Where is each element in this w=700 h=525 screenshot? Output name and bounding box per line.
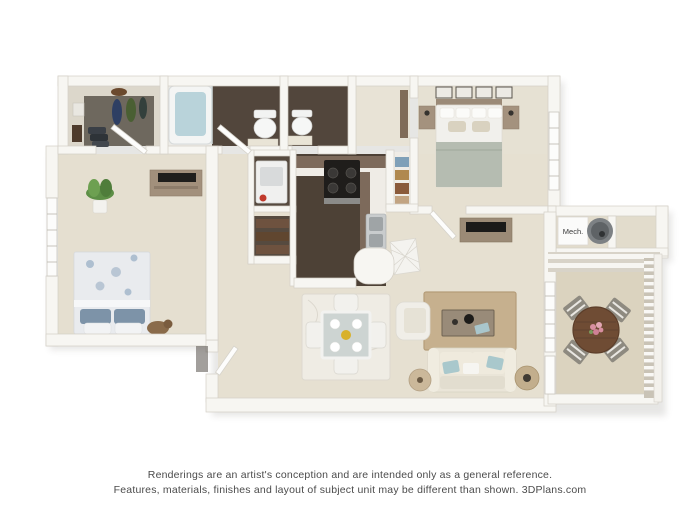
pouf-left: [409, 369, 431, 391]
decor-screen: [390, 238, 420, 274]
dining-area: [302, 294, 390, 380]
mech-label: Mech.: [563, 227, 583, 236]
bedroom2-window: [47, 198, 57, 276]
armchair: [396, 302, 430, 340]
master-window: [549, 112, 559, 190]
dresser-with-tv: [150, 170, 202, 196]
nightstand-right: [503, 106, 519, 129]
toilet-1: [254, 110, 276, 138]
detergent: [260, 195, 267, 202]
dining-table: [322, 312, 370, 358]
pantry-closet: [256, 219, 289, 254]
hanging-clothes: [112, 99, 122, 125]
sofa: [428, 348, 516, 392]
disclaimer-line-1: Renderings are an artist's conception an…: [0, 469, 700, 481]
closet-shelf-stack: [73, 103, 84, 116]
counter-end-curve: [354, 248, 394, 284]
mech-closet: Mech.: [558, 217, 613, 245]
patio-overhang: [548, 252, 660, 272]
toilet-2: [292, 110, 312, 135]
dressing-nook: [400, 90, 408, 138]
side-table-lamp: [515, 366, 539, 390]
water-heater: [587, 218, 613, 244]
coffee-table: [442, 310, 494, 336]
nightstand-left: [419, 106, 435, 129]
entry-threshold: [196, 346, 208, 372]
patio-window: [545, 282, 555, 352]
floor-plan-image: Mech.: [0, 0, 700, 525]
nook-dresser: [400, 90, 408, 138]
laundry-closet: [256, 161, 287, 203]
centerpiece: [341, 330, 351, 340]
kitchen-sink: [366, 214, 386, 250]
patio-railing: [644, 254, 662, 402]
patio-table: [573, 307, 619, 353]
tv-console: [460, 218, 512, 242]
floor-plan-page: Mech. Renderings are an artist's concept…: [0, 0, 700, 525]
floor-plan-svg: Mech.: [0, 0, 700, 525]
disclaimer-line-2: Features, materials, finishes and layout…: [0, 484, 700, 496]
vanity-1: [248, 139, 278, 146]
master-bed: [436, 99, 502, 187]
closet-bag: [111, 88, 127, 96]
patio-door: [545, 356, 555, 394]
stove: [324, 160, 360, 204]
bedroom2-bed: [74, 252, 150, 334]
vanity-2: [288, 136, 312, 145]
